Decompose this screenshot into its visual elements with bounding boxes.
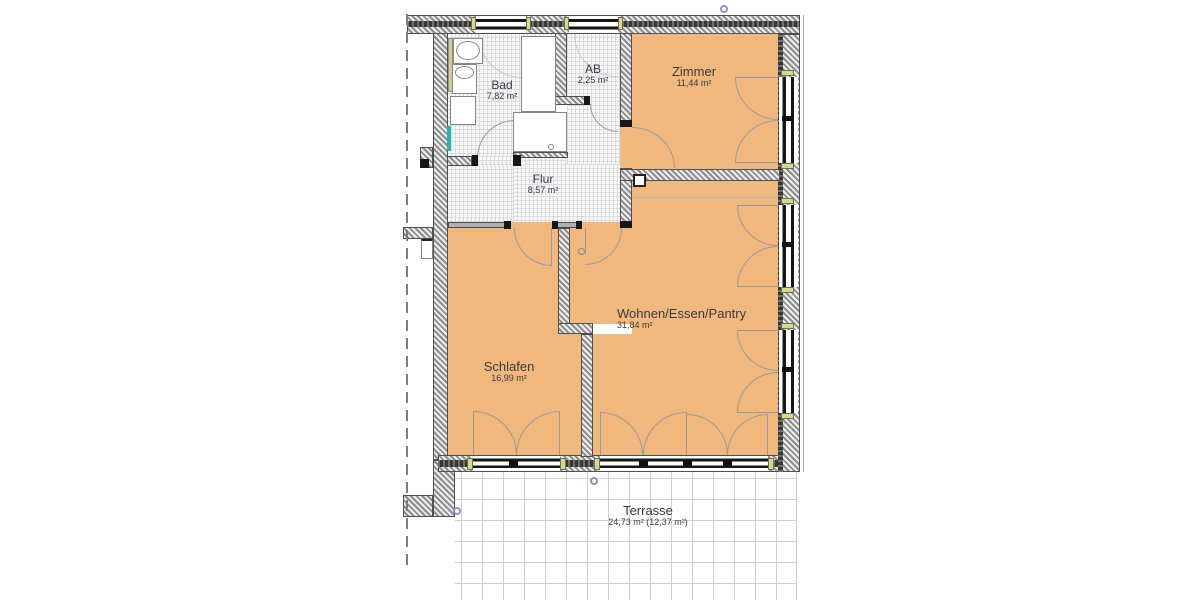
fd-zimmer-sill-top — [781, 70, 794, 76]
jamb-bad-door-left — [472, 155, 478, 166]
survey-marker-north — [720, 5, 728, 13]
door-leaf-schlafen — [551, 228, 552, 266]
property-boundary-line — [406, 14, 408, 572]
wall-flur-schlafen — [448, 222, 510, 228]
wall-closet-south — [513, 152, 568, 158]
fd-zimmer-leaf-lower — [735, 162, 778, 163]
fd-zimmer-leaf-upper — [735, 77, 778, 78]
fd-zimmer-meeting-tick — [782, 116, 794, 121]
jamb-zimmer-door-top — [620, 120, 632, 127]
room-label-wohnen: Wohnen/Essen/Pantry 31,84 m² — [617, 307, 746, 331]
room-area-terrasse: 24,73 m² (12,37 m²) — [608, 517, 688, 528]
jamb-west-pier — [420, 159, 429, 168]
threshold-zimmer-door — [620, 127, 632, 168]
closet-unit — [513, 112, 567, 152]
sink-basin — [456, 41, 480, 60]
td-wohnen-leaf-1 — [600, 412, 601, 455]
window-bad-sill-left — [471, 17, 476, 30]
td-wohnen-sill-left — [594, 458, 600, 470]
td-wohnen-tick-1 — [639, 461, 648, 466]
room-label-zimmer: Zimmer 11,44 m² — [672, 65, 716, 89]
td-schlafen-leaf-left — [473, 411, 474, 455]
room-name-terrasse: Terrasse — [608, 504, 688, 517]
wall-west-niche — [421, 239, 433, 259]
td-wohnen-leaf-3 — [767, 414, 768, 455]
wall-west — [433, 33, 448, 460]
jamb-bad-door-right — [513, 155, 521, 166]
room-schlafen-floor-east — [558, 334, 581, 457]
floor-plan-canvas: Bad 7,82 m² AB 2,25 m² Zimmer 11,44 m² F… — [0, 0, 1200, 600]
room-area-wohnen: 31,84 m² — [617, 320, 746, 331]
door-leaf-wohnen — [585, 228, 586, 254]
window-ab — [569, 16, 618, 33]
fd-wohnen-s-meeting-tick — [782, 367, 794, 372]
td-schlafen-sill-right — [560, 458, 566, 470]
window-ab-sill-left — [564, 17, 569, 30]
fd-wohnen-s-leaf-lower — [737, 412, 778, 413]
td-wohnen-tick-2 — [683, 461, 692, 466]
jamb-flur-wohnen-wall — [620, 221, 632, 228]
survey-marker-terrace-west — [453, 507, 461, 515]
fd-wohnen-n-meeting-tick — [782, 242, 794, 247]
wall-schlafen-wohnen-lower — [581, 334, 593, 457]
radiator — [447, 126, 451, 151]
room-label-terrasse: Terrasse 24,73 m² (12,37 m²) — [608, 504, 688, 528]
room-label-schlafen: Schlafen 16,99 m² — [484, 360, 535, 384]
door-hinge-ring-wohnen — [578, 248, 585, 255]
fd-wohnen-n-leaf-lower — [737, 286, 778, 287]
terrasse-floor — [455, 472, 797, 600]
shower-tray — [450, 96, 476, 125]
wall-schlafen-wohnen-jog — [558, 323, 593, 334]
window-bad — [476, 16, 526, 33]
duct-shaft — [633, 174, 646, 187]
room-name-bad: Bad — [487, 79, 518, 91]
roof-overhang-line — [803, 15, 804, 472]
room-area-bad: 7,82 m² — [487, 91, 518, 102]
room-name-wohnen: Wohnen/Essen/Pantry — [617, 307, 746, 320]
ceiling-edge-line — [632, 197, 778, 198]
room-name-ab: AB — [578, 63, 609, 75]
fd-wohnen-n-leaf-upper — [737, 205, 778, 206]
room-label-bad: Bad 7,82 m² — [487, 79, 518, 102]
wall-schlafen-wohnen-upper — [558, 228, 570, 325]
wall-bad-ab — [555, 33, 567, 104]
fd-wohnen-s-sill-bottom — [781, 413, 794, 419]
room-area-flur: 8,57 m² — [528, 185, 559, 196]
fd-wohnen-s-sill-top — [781, 323, 794, 329]
wall-flur-zimmer-north — [620, 33, 632, 127]
closet-handle-ring — [548, 144, 554, 150]
room-label-flur: Flur 8,57 m² — [528, 173, 559, 196]
room-name-zimmer: Zimmer — [672, 65, 716, 78]
fd-wohnen-n-sill-bottom — [781, 287, 794, 293]
td-schlafen-meeting-tick — [509, 461, 518, 466]
fd-wohnen-n-sill-top — [781, 198, 794, 204]
td-schlafen-leaf-right — [559, 411, 560, 455]
room-area-zimmer: 11,44 m² — [672, 78, 716, 89]
jamb-schlafen-door-right — [552, 221, 558, 229]
jamb-ab-door — [584, 96, 590, 105]
jamb-schlafen-door-left — [504, 221, 511, 229]
td-wohnen-sill-right — [768, 458, 774, 470]
window-ab-sill-right — [618, 17, 623, 30]
room-name-schlafen: Schlafen — [484, 360, 535, 373]
td-wohnen-tick-3 — [723, 461, 732, 466]
window-bad-sill-right — [526, 17, 531, 30]
room-label-ab: AB 2,25 m² — [578, 63, 609, 86]
room-area-ab: 2,25 m² — [578, 75, 609, 86]
jamb-wohnen-door-left — [576, 221, 582, 229]
room-area-schlafen: 16,99 m² — [484, 373, 535, 384]
fd-zimmer-sill-bottom — [781, 163, 794, 169]
toilet-bowl — [455, 66, 474, 79]
survey-marker-terrace — [590, 477, 598, 485]
room-name-flur: Flur — [528, 173, 559, 185]
td-wohnen-leaf-2 — [686, 412, 687, 455]
wall-bad-south — [447, 156, 472, 166]
bathtub — [521, 36, 556, 112]
td-schlafen-sill-left — [467, 458, 473, 470]
